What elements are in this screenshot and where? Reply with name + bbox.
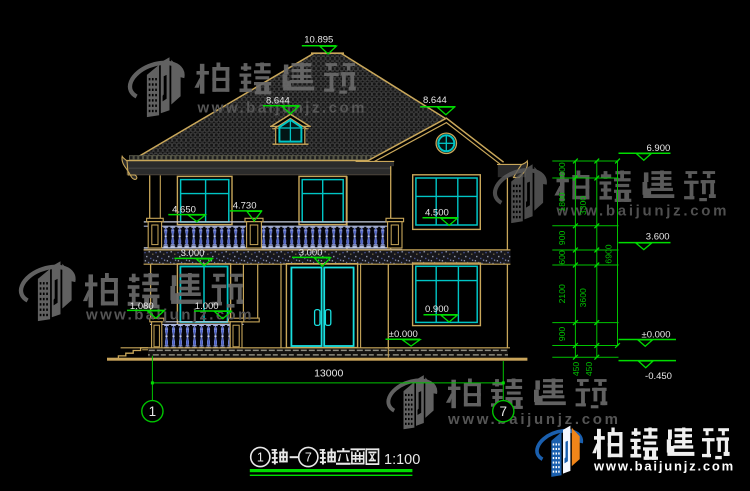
svg-text:450: 450 xyxy=(571,362,581,377)
svg-text:6.900: 6.900 xyxy=(647,143,671,154)
svg-text:1: 1 xyxy=(149,404,157,419)
svg-text:7: 7 xyxy=(305,451,312,465)
svg-text:0.900: 0.900 xyxy=(425,304,449,315)
svg-text:www.baijunjz.com: www.baijunjz.com xyxy=(85,307,254,324)
svg-text:4.500: 4.500 xyxy=(425,207,449,218)
svg-text:www.baijunjz.com: www.baijunjz.com xyxy=(447,411,621,428)
svg-text:8.644: 8.644 xyxy=(266,95,290,106)
svg-text:2100: 2100 xyxy=(557,284,567,303)
svg-text:450: 450 xyxy=(584,362,594,377)
svg-text:3300: 3300 xyxy=(578,196,588,215)
svg-text:8.644: 8.644 xyxy=(423,95,447,106)
svg-text:www.baijunjz.com: www.baijunjz.com xyxy=(593,459,735,474)
svg-text:13000: 13000 xyxy=(314,368,343,380)
svg-text:3600: 3600 xyxy=(578,288,588,307)
svg-text:10.895: 10.895 xyxy=(304,35,333,46)
svg-text:600: 600 xyxy=(557,162,567,177)
svg-text:900: 900 xyxy=(557,231,567,246)
svg-text:1800: 1800 xyxy=(557,192,567,211)
svg-text:3.000: 3.000 xyxy=(181,248,205,259)
svg-text:6900: 6900 xyxy=(604,244,614,263)
svg-text:1:100: 1:100 xyxy=(384,452,420,468)
svg-text:1: 1 xyxy=(257,451,264,465)
svg-text:7: 7 xyxy=(500,404,508,419)
svg-text:4.730: 4.730 xyxy=(233,201,257,212)
svg-text:-0.450: -0.450 xyxy=(645,371,672,382)
svg-text:3.600: 3.600 xyxy=(646,232,670,243)
svg-text:900: 900 xyxy=(557,327,567,342)
svg-text:600: 600 xyxy=(557,250,567,265)
